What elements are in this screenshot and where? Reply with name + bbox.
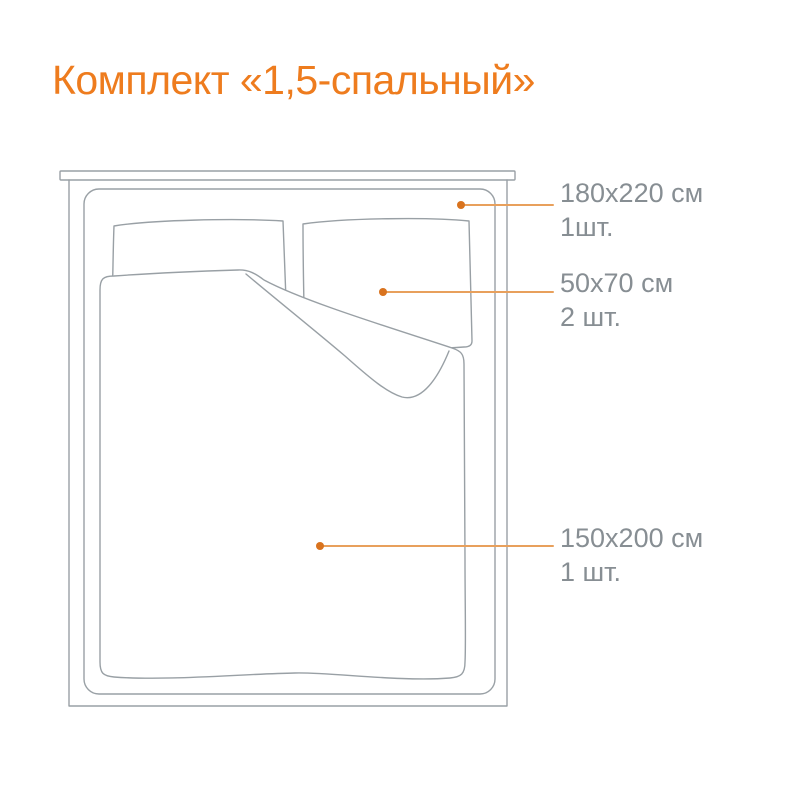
headboard: [60, 171, 515, 180]
sheet-qty: 1 шт.: [560, 555, 703, 589]
pillowcase-qty: 2 шт.: [560, 300, 673, 334]
label-pillowcase: 50x70 см 2 шт.: [560, 266, 673, 334]
duvet-cover-qty: 1шт.: [560, 210, 703, 244]
pillowcase-size: 50x70 см: [560, 266, 673, 300]
duvet-cover-size: 180x220 см: [560, 176, 703, 210]
label-duvet-cover: 180x220 см 1шт.: [560, 176, 703, 244]
sheet-size: 150x200 см: [560, 521, 703, 555]
leader-dot-sheet: [316, 542, 324, 550]
label-sheet: 150x200 см 1 шт.: [560, 521, 703, 589]
bedding-set-infographic: Комплект «1,5-спальный» 180x220 см 1шт. …: [0, 0, 800, 800]
leader-dot-duvet-cover: [457, 201, 465, 209]
leader-dot-pillowcase: [379, 288, 387, 296]
bed-diagram: [0, 0, 800, 800]
